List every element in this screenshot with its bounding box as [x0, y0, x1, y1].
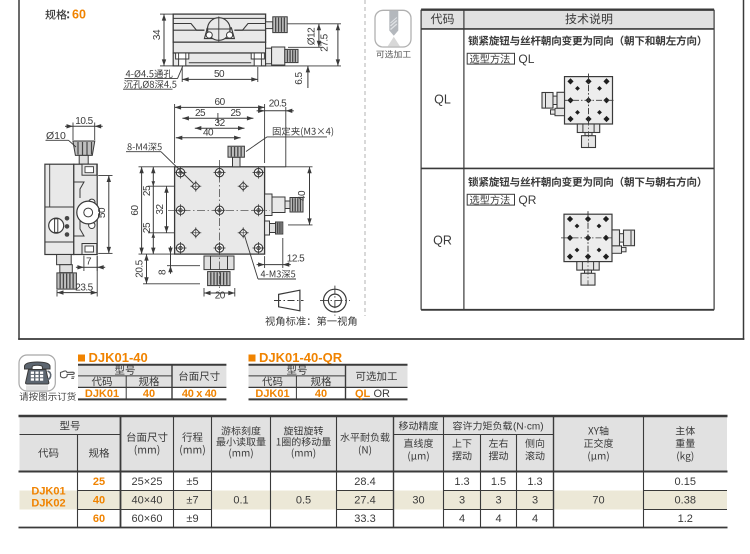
svg-text:DJK01: DJK01 — [31, 486, 65, 498]
svg-text:33.3: 33.3 — [354, 513, 375, 525]
svg-text:QR: QR — [518, 193, 536, 207]
svg-text:QL: QL — [355, 388, 371, 400]
svg-text:32: 32 — [215, 118, 226, 129]
svg-text:32: 32 — [155, 204, 166, 215]
svg-text:0.38: 0.38 — [675, 495, 696, 507]
svg-text:OR: OR — [374, 388, 391, 400]
svg-text:60: 60 — [72, 8, 86, 22]
svg-text:4: 4 — [459, 513, 465, 525]
svg-text:30: 30 — [412, 495, 424, 507]
svg-text:25: 25 — [142, 185, 153, 196]
svg-text:25×25: 25×25 — [132, 476, 163, 488]
svg-text:Ø12: Ø12 — [307, 27, 318, 45]
svg-text:1.3: 1.3 — [527, 476, 542, 488]
svg-text:DJK01: DJK01 — [255, 388, 289, 400]
svg-text:3: 3 — [532, 495, 538, 507]
svg-text:28.4: 28.4 — [354, 476, 375, 488]
svg-text:±7: ±7 — [186, 495, 198, 507]
svg-text:(N·cm): (N·cm) — [513, 422, 544, 433]
svg-text:40: 40 — [93, 495, 105, 507]
svg-text:DJK01-40-QR: DJK01-40-QR — [259, 350, 343, 365]
svg-text:40: 40 — [297, 190, 308, 201]
svg-text:60: 60 — [130, 205, 141, 216]
svg-text:DJK02: DJK02 — [31, 498, 65, 510]
svg-text:60: 60 — [215, 97, 226, 108]
svg-text:4: 4 — [532, 513, 538, 525]
svg-text:0.5: 0.5 — [296, 495, 311, 507]
svg-text:34: 34 — [152, 29, 163, 40]
svg-text:3: 3 — [459, 495, 465, 507]
svg-text:6.5: 6.5 — [294, 71, 305, 84]
svg-text:27.5: 27.5 — [320, 33, 331, 51]
svg-text:12.5: 12.5 — [287, 254, 305, 265]
svg-text:±5: ±5 — [186, 476, 198, 488]
svg-text:QL: QL — [518, 52, 534, 66]
svg-text:DJK01: DJK01 — [85, 388, 119, 400]
svg-text:20.5: 20.5 — [269, 99, 287, 110]
svg-text:27.4: 27.4 — [354, 495, 375, 507]
svg-text:70: 70 — [592, 495, 604, 507]
svg-text:25: 25 — [142, 222, 153, 233]
svg-text:1.2: 1.2 — [678, 513, 693, 525]
svg-text:40: 40 — [143, 388, 155, 400]
svg-text:40: 40 — [315, 388, 327, 400]
svg-text:3: 3 — [495, 495, 501, 507]
svg-text:50: 50 — [97, 207, 108, 218]
svg-text:60×60: 60×60 — [132, 513, 163, 525]
svg-text:20.5: 20.5 — [135, 259, 146, 277]
svg-text:40 x 40: 40 x 40 — [182, 388, 217, 400]
svg-text:10.5: 10.5 — [75, 116, 93, 127]
svg-text:0.1: 0.1 — [233, 495, 248, 507]
svg-text:25: 25 — [93, 476, 105, 488]
svg-text:4: 4 — [495, 513, 501, 525]
svg-text:1.3: 1.3 — [454, 476, 469, 488]
svg-text:1.5: 1.5 — [491, 476, 506, 488]
svg-text:60: 60 — [93, 513, 105, 525]
svg-text:QL: QL — [434, 93, 451, 107]
svg-text:QR: QR — [433, 234, 452, 248]
svg-text:25: 25 — [195, 108, 206, 119]
svg-text:50: 50 — [214, 69, 225, 80]
svg-text:23.5: 23.5 — [75, 282, 93, 293]
svg-text:40×40: 40×40 — [132, 495, 163, 507]
svg-text:25: 25 — [230, 108, 241, 119]
svg-text:DJK01-40: DJK01-40 — [89, 350, 148, 365]
svg-text:0.15: 0.15 — [675, 476, 696, 488]
svg-text:20: 20 — [215, 290, 226, 301]
svg-text:±9: ±9 — [186, 513, 198, 525]
svg-text:40: 40 — [203, 128, 214, 139]
